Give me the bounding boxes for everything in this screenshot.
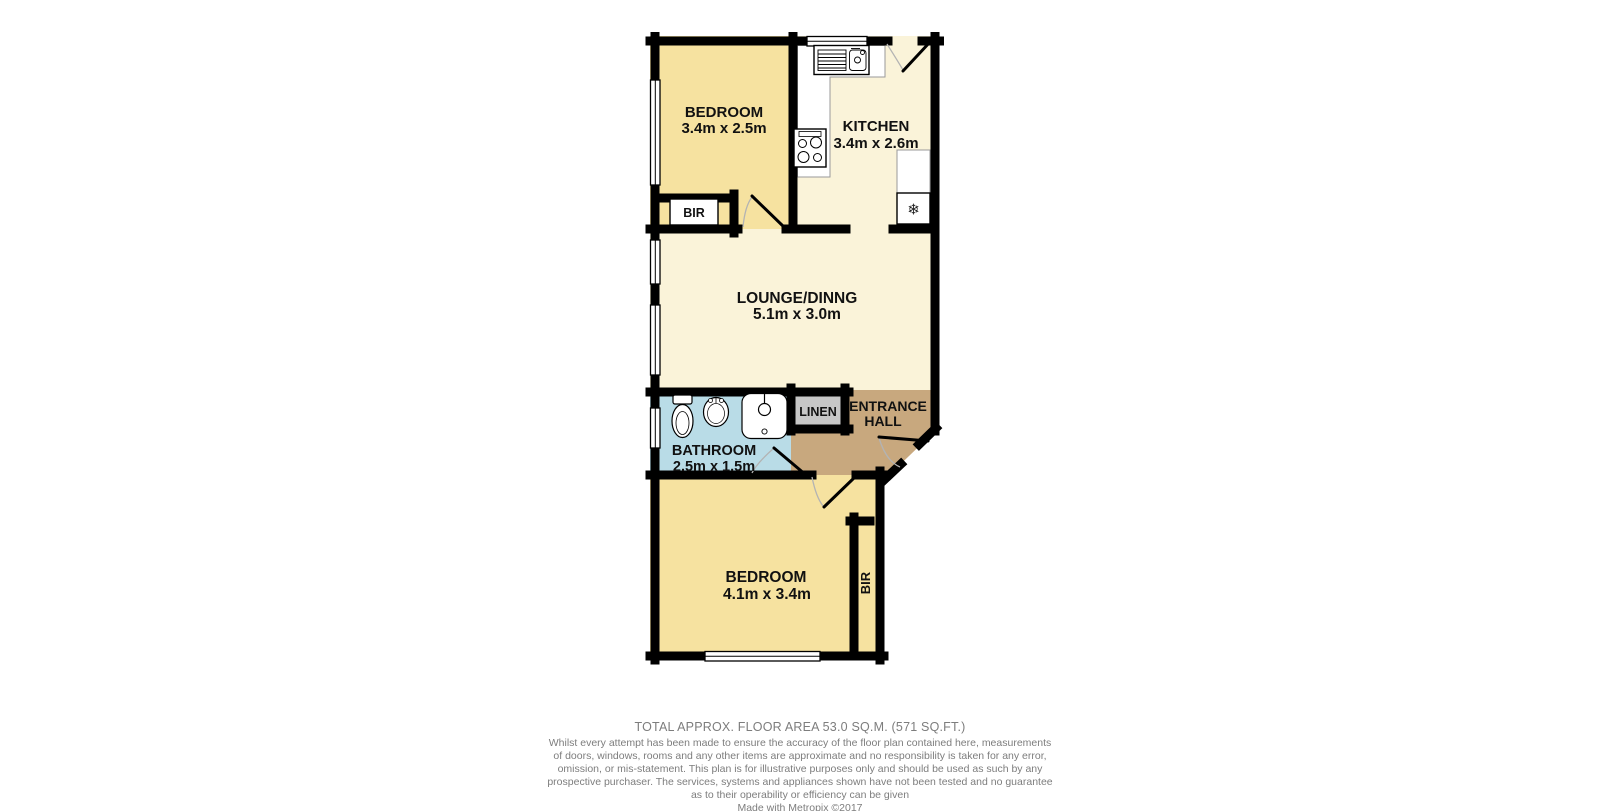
room-bedroom-bottom: [650, 475, 884, 656]
entrance-hall-line1: ENTRANCE: [849, 398, 927, 414]
bedroom-bottom-dims: 4.1m x 3.4m: [723, 586, 811, 603]
snowflake-icon: ❄: [907, 202, 920, 219]
footer: TOTAL APPROX. FLOOR AREA 53.0 SQ.M. (571…: [0, 719, 1600, 811]
bir-bottom-label: BIR: [858, 571, 873, 594]
sink-icon: [814, 46, 869, 75]
kitchen-name: KITCHEN: [843, 118, 910, 135]
bir-top-label: BIR: [683, 206, 705, 220]
bathroom-dims: 2.5m x 1.5m: [673, 459, 755, 475]
disclaimer-line: as to their operability or efficiency ca…: [0, 789, 1600, 802]
lounge-name: LOUNGE/DINNG: [737, 290, 858, 307]
metropix-credit: Made with Metropix ©2017: [0, 802, 1600, 811]
disclaimer: Whilst every attempt has been made to en…: [0, 737, 1600, 802]
total-floor-area: TOTAL APPROX. FLOOR AREA 53.0 SQ.M. (571…: [0, 719, 1600, 735]
floorplan-drawing: ❄ BIR BEDROOM 3.4m x 2.5m K: [0, 0, 1600, 811]
bathroom-name: BATHROOM: [672, 443, 756, 459]
toilet-icon: [672, 395, 693, 438]
robe-top-icon: BIR: [670, 199, 718, 225]
stove-icon: [794, 129, 826, 167]
shower-icon: [742, 394, 787, 439]
fridge-icon: ❄: [897, 193, 930, 224]
entrance-hall-line2: HALL: [864, 413, 902, 429]
disclaimer-line: prospective purchaser. The services, sys…: [0, 776, 1600, 789]
disclaimer-line: Whilst every attempt has been made to en…: [0, 737, 1600, 750]
lounge-dims: 5.1m x 3.0m: [753, 306, 841, 323]
kitchen-dims: 3.4m x 2.6m: [833, 135, 918, 152]
linen-label: LINEN: [799, 405, 837, 419]
disclaimer-line: of doors, windows, rooms and any other i…: [0, 750, 1600, 763]
bedroom-bottom-name: BEDROOM: [726, 569, 807, 586]
bedroom-top-name: BEDROOM: [685, 104, 763, 121]
basin-icon: [704, 398, 729, 427]
floorplan-page: ❄ BIR BEDROOM 3.4m x 2.5m K: [0, 0, 1600, 811]
disclaimer-line: omission, or mis-statement. This plan is…: [0, 763, 1600, 776]
kitchen-counter-right-icon: [897, 150, 930, 193]
bedroom-top-dims: 3.4m x 2.5m: [681, 120, 766, 137]
